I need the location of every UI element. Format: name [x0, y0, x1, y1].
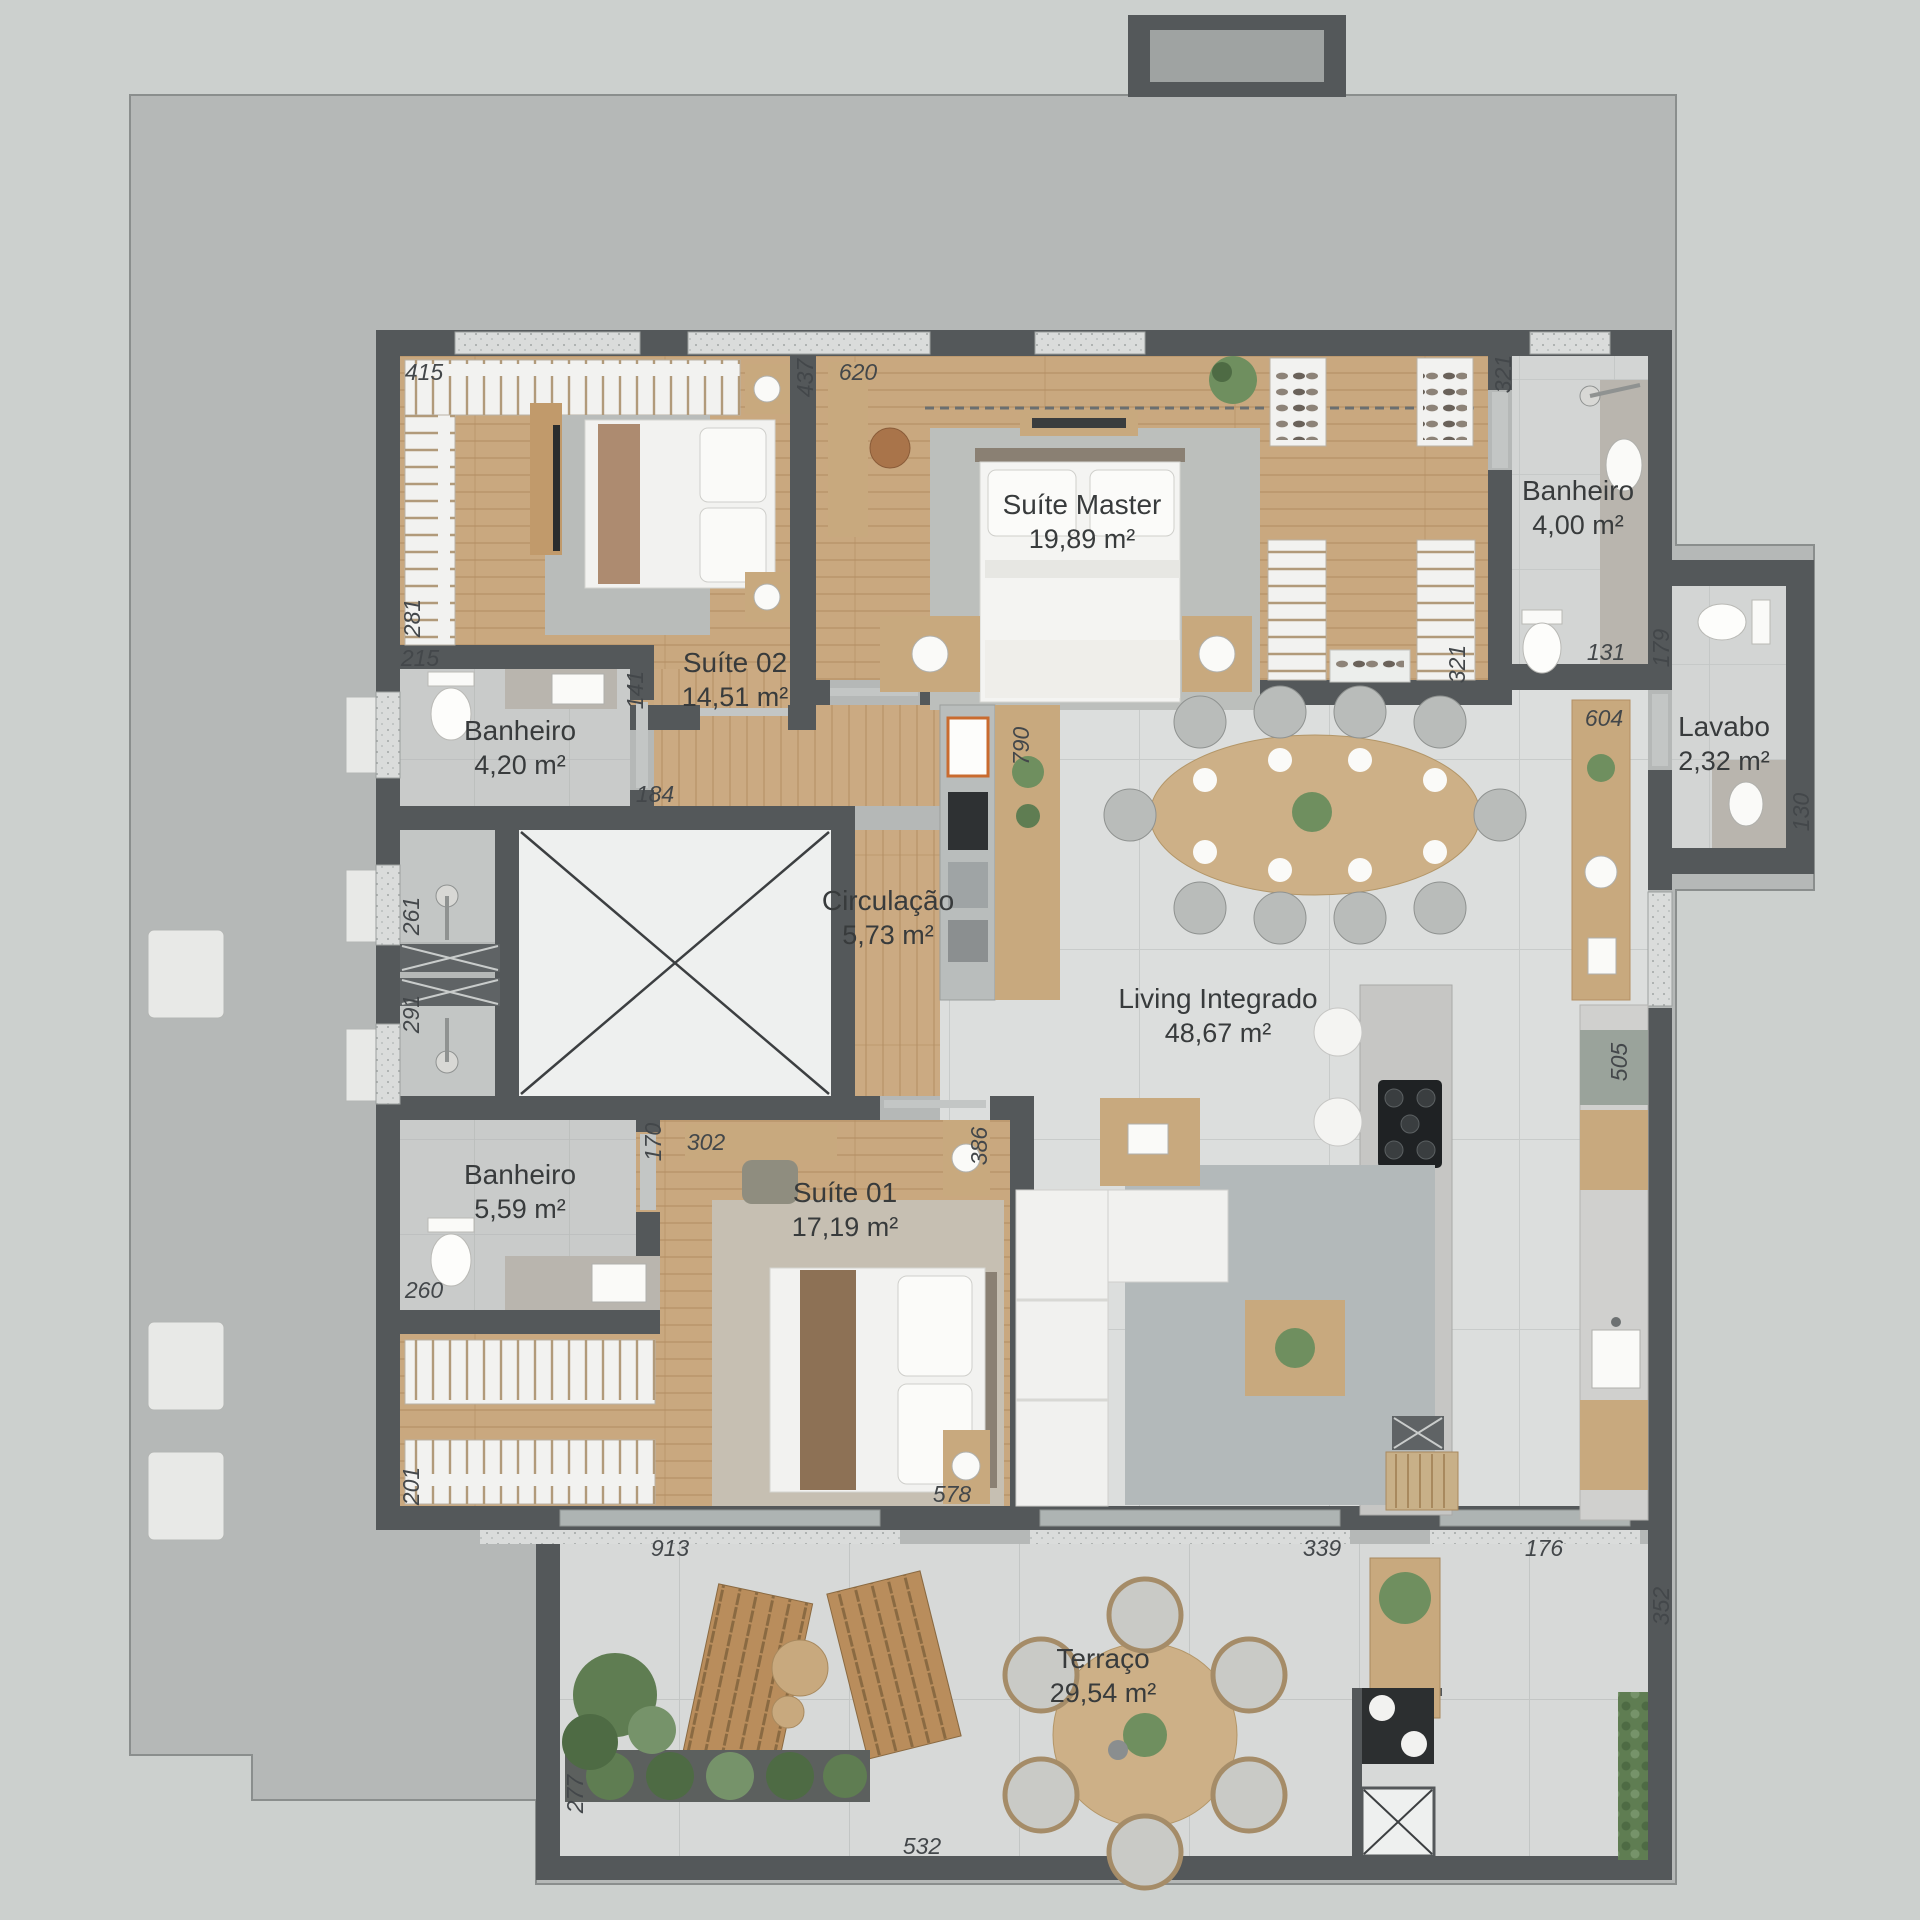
- dim-532: 532: [903, 1833, 942, 1859]
- window: [1648, 892, 1672, 1006]
- dim-620: 620: [839, 359, 878, 385]
- room-area-suite-master: 19,89 m²: [1029, 524, 1136, 554]
- pillow: [700, 508, 766, 582]
- wicker-chair: [1213, 1759, 1285, 1831]
- lamp: [754, 584, 780, 610]
- dim-437: 437: [792, 358, 818, 398]
- kitchen-sink: [1592, 1330, 1640, 1388]
- plate: [1268, 858, 1292, 882]
- bar-stool: [1314, 1098, 1362, 1146]
- window: [376, 692, 400, 778]
- room-label-terraco: Terraço: [1056, 1643, 1149, 1674]
- dim-131: 131: [1587, 639, 1625, 665]
- glass-door: [1040, 1510, 1340, 1526]
- dim-913: 913: [651, 1535, 690, 1561]
- room-label-suite-master: Suíte Master: [1003, 489, 1162, 520]
- plate: [1423, 840, 1447, 864]
- dim-184: 184: [636, 781, 674, 807]
- cabinet: [1580, 1400, 1648, 1490]
- wicker-chair: [1109, 1579, 1181, 1651]
- side-table: [772, 1696, 804, 1728]
- wicker-chair: [1109, 1816, 1181, 1888]
- toilet-tank: [1752, 600, 1770, 644]
- toilet-tank: [428, 1218, 474, 1232]
- plate: [1348, 858, 1372, 882]
- dim-352: 352: [1648, 1587, 1674, 1626]
- window: [376, 865, 400, 945]
- plant: [1587, 754, 1615, 782]
- dim-260: 260: [404, 1277, 444, 1303]
- room-label-suite02: Suíte 02: [683, 647, 787, 678]
- room-label-suite01: Suíte 01: [793, 1177, 897, 1208]
- room-area-circulacao: 5,73 m²: [842, 920, 934, 950]
- room-area-suite02: 14,51 m²: [682, 682, 789, 712]
- window-sill: [346, 1029, 376, 1101]
- decor-book: [1588, 938, 1616, 974]
- espresso-machine: [948, 718, 988, 776]
- dim-790: 790: [1008, 727, 1034, 766]
- lamp: [952, 1452, 980, 1480]
- dim-261: 261: [398, 897, 424, 936]
- dim-505: 505: [1606, 1043, 1632, 1082]
- wicker-chair: [1213, 1639, 1285, 1711]
- pillow: [700, 428, 766, 502]
- lamp: [912, 636, 948, 672]
- toilet-tank: [428, 672, 474, 686]
- book: [1128, 1124, 1168, 1154]
- toilet: [1698, 604, 1746, 640]
- dim-215: 215: [400, 645, 440, 671]
- condenser-unit: [148, 1322, 224, 1410]
- wicker-chair: [1005, 1759, 1077, 1831]
- plant: [1379, 1572, 1431, 1624]
- room-area-lavabo: 2,32 m²: [1678, 746, 1770, 776]
- dining-chair: [1174, 882, 1226, 934]
- floor-plan: Suíte 02 14,51 m² Suíte Master 19,89 m² …: [0, 0, 1920, 1920]
- dining-chair: [1104, 789, 1156, 841]
- pillow: [898, 1276, 972, 1376]
- dim-176: 176: [1525, 1535, 1564, 1561]
- window-sill: [346, 697, 376, 773]
- sink: [552, 674, 604, 704]
- room-area-terraco: 29,54 m²: [1050, 1678, 1157, 1708]
- dim-277: 277: [562, 1774, 588, 1815]
- door-threshold: [1652, 694, 1668, 766]
- glass-door: [560, 1510, 880, 1526]
- room-area-suite01: 17,19 m²: [792, 1212, 899, 1242]
- dining-chair: [1254, 892, 1306, 944]
- dim-339: 339: [1303, 1535, 1342, 1561]
- toilet-tank: [1522, 610, 1562, 624]
- dim-141: 141: [622, 671, 648, 709]
- window-sill: [346, 870, 376, 942]
- side-table: [772, 1640, 828, 1696]
- dim-302: 302: [687, 1129, 726, 1155]
- dining-chair: [1334, 892, 1386, 944]
- cabinet: [1580, 1110, 1648, 1190]
- dining-chair: [1254, 686, 1306, 738]
- desk-chair: [742, 1160, 798, 1204]
- window: [1530, 332, 1610, 354]
- door-threshold: [636, 702, 648, 788]
- centerpiece-plant: [1123, 1713, 1167, 1757]
- plate: [1268, 748, 1292, 772]
- desk: [828, 362, 868, 537]
- room-label-lavabo: Lavabo: [1678, 711, 1770, 742]
- lamp: [1199, 636, 1235, 672]
- dining-chair: [1334, 686, 1386, 738]
- room-label-banheiro-suite01: Banheiro: [464, 1159, 576, 1190]
- window: [688, 332, 930, 354]
- window: [1035, 332, 1145, 354]
- dining-chair: [1414, 882, 1466, 934]
- door-sill: [480, 1530, 900, 1544]
- plate: [1193, 768, 1217, 792]
- room-area-banheiro-suite01: 5,59 m²: [474, 1194, 566, 1224]
- room-area-banheiro-master: 4,00 m²: [1532, 510, 1624, 540]
- window: [376, 1024, 400, 1104]
- dining-chair: [1174, 696, 1226, 748]
- headboard: [975, 448, 1185, 462]
- bed-throw: [598, 424, 640, 584]
- plant: [1275, 1328, 1315, 1368]
- room-label-living: Living Integrado: [1118, 983, 1317, 1014]
- bar-stool: [1314, 1008, 1362, 1056]
- desk-chair: [870, 428, 910, 468]
- window: [455, 332, 640, 354]
- plate: [1193, 840, 1217, 864]
- decor: [1585, 856, 1617, 888]
- dim-201: 201: [398, 1467, 424, 1506]
- plant: [1016, 804, 1040, 828]
- toilet: [1523, 623, 1561, 673]
- dim-415: 415: [405, 359, 444, 385]
- vertical-garden: [1618, 1692, 1648, 1860]
- door-threshold: [1492, 392, 1508, 468]
- door-threshold: [884, 1100, 986, 1108]
- room-label-banheiro-suite02: Banheiro: [464, 715, 576, 746]
- dim-578: 578: [933, 1481, 972, 1507]
- condenser-unit: [148, 1452, 224, 1540]
- plate: [1423, 768, 1447, 792]
- dim-170: 170: [640, 1123, 666, 1162]
- faucet: [1611, 1317, 1621, 1327]
- room-area-banheiro-suite02: 4,20 m²: [474, 750, 566, 780]
- dim-281: 281: [399, 599, 425, 638]
- dining-chair: [1414, 696, 1466, 748]
- dining-chair: [1474, 789, 1526, 841]
- bed-runner: [800, 1270, 856, 1490]
- dim-321-closet: 321: [1444, 645, 1470, 683]
- room-label-circulacao: Circulação: [822, 885, 954, 916]
- dim-179: 179: [1648, 629, 1674, 668]
- lamp: [754, 376, 780, 402]
- dim-386: 386: [966, 1127, 992, 1166]
- tv: [553, 425, 560, 551]
- floor-plan-svg: Suíte 02 14,51 m² Suíte Master 19,89 m² …: [0, 0, 1920, 1920]
- plate: [1348, 748, 1372, 772]
- dim-604: 604: [1585, 705, 1623, 731]
- sink: [1729, 782, 1763, 826]
- dim-291: 291: [398, 995, 424, 1034]
- dim-321-top: 321: [1490, 355, 1516, 393]
- dim-130: 130: [1788, 793, 1814, 832]
- centerpiece-plant: [1292, 792, 1332, 832]
- room-area-living: 48,67 m²: [1165, 1018, 1272, 1048]
- room-label-banheiro-master: Banheiro: [1522, 475, 1634, 506]
- coffee-machine: [948, 792, 988, 850]
- sink: [592, 1264, 646, 1302]
- condenser-unit: [148, 930, 224, 1018]
